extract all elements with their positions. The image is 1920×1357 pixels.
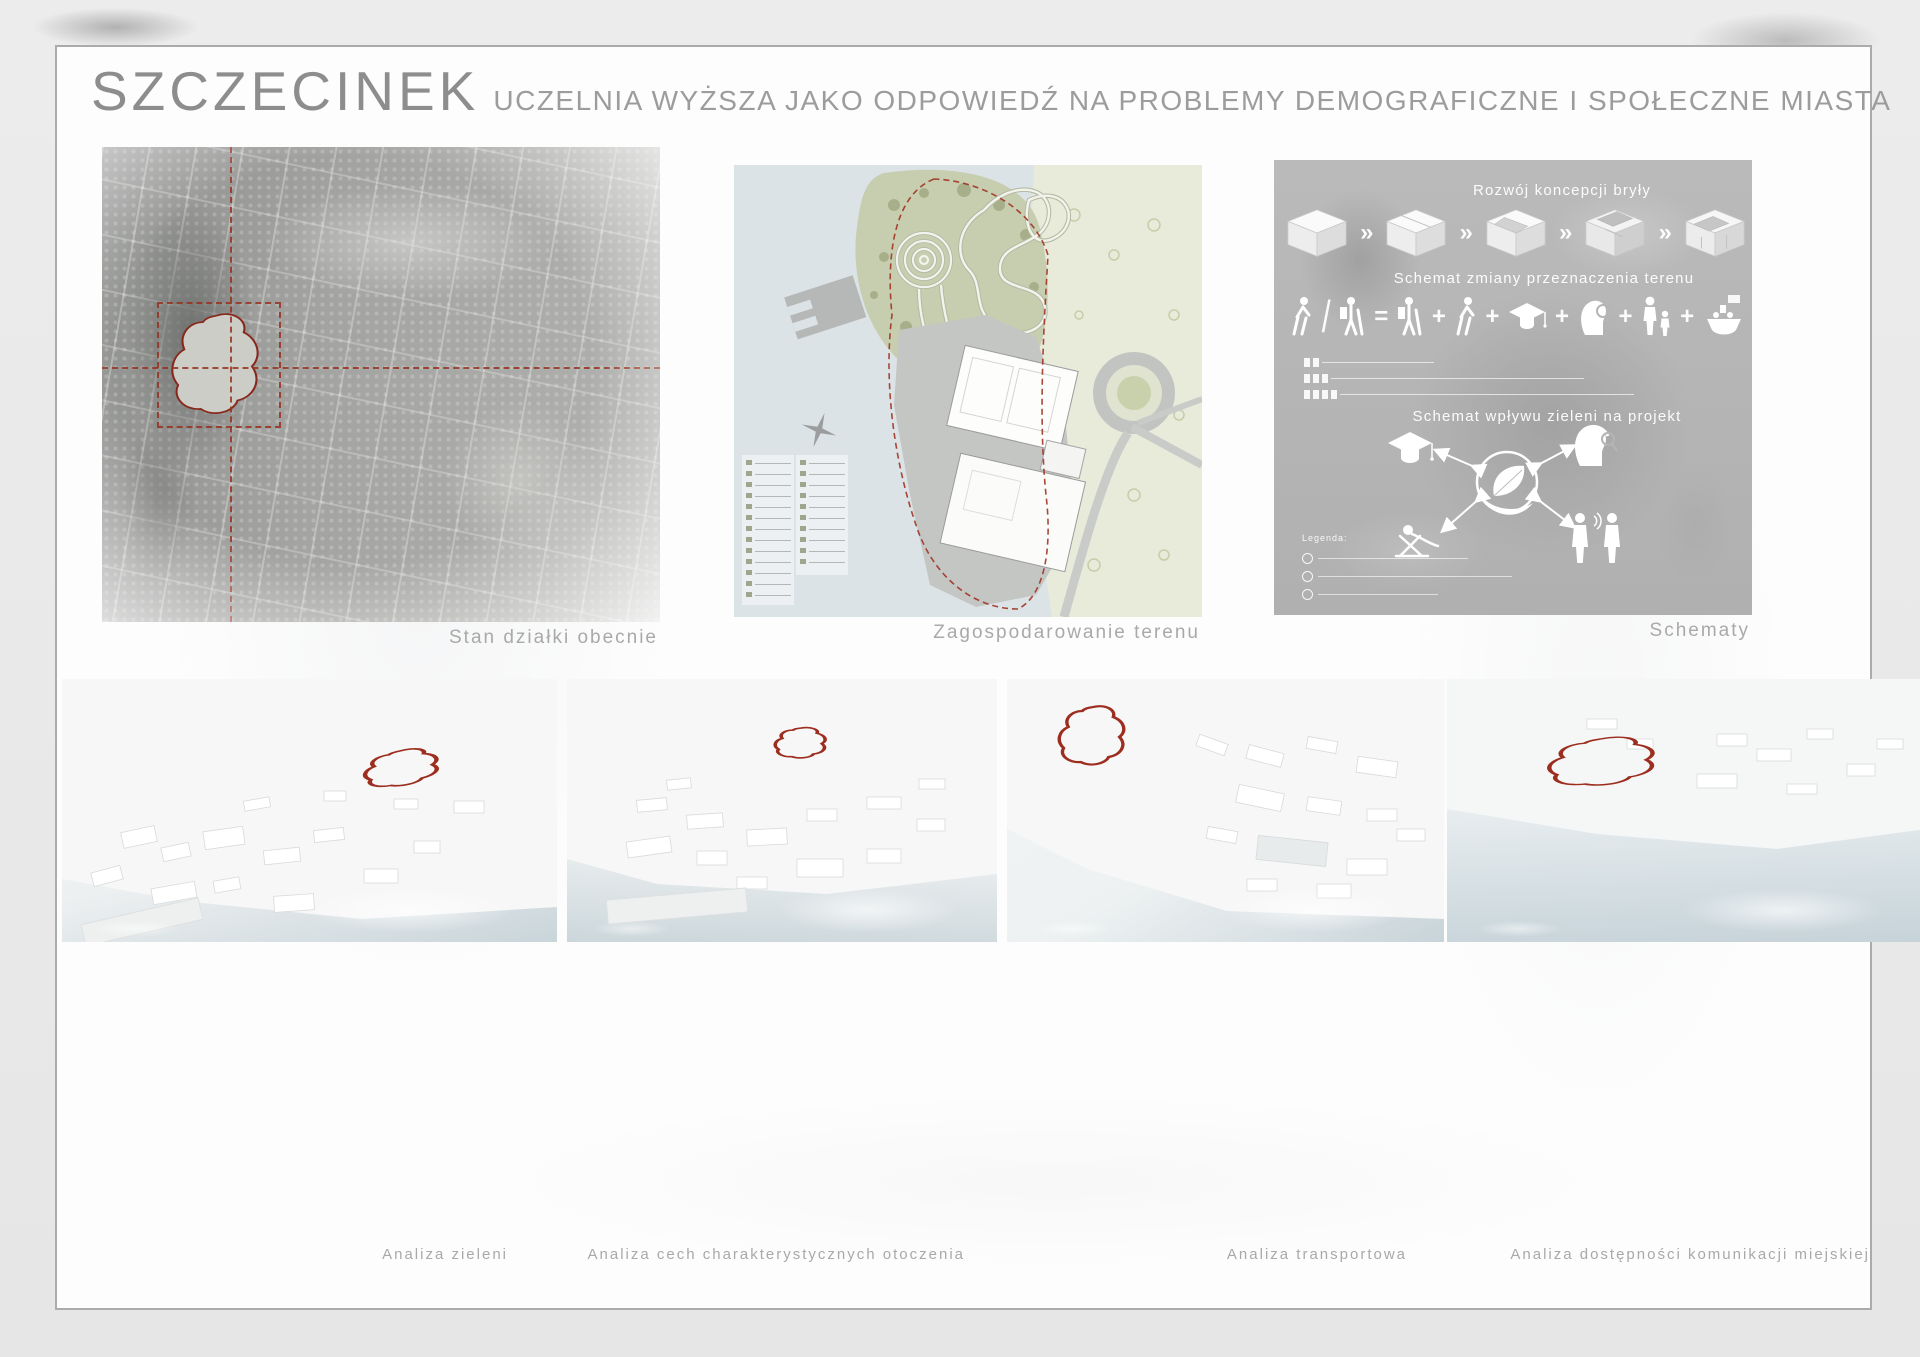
title-bar: SZCZECINEK UCZELNIA WYŻSZA JAKO ODPOWIED… xyxy=(91,59,1891,123)
visualization-2 xyxy=(567,679,997,942)
family-icon xyxy=(1640,296,1672,338)
plus-icon: + xyxy=(1485,303,1499,331)
compass-icon xyxy=(796,407,841,452)
scheme-landuse-title: Schemat zmiany przeznaczenia terenu xyxy=(1394,270,1694,287)
plus-icon: + xyxy=(1619,303,1633,331)
schemes-panel: Rozwój koncepcji bryły » » xyxy=(1274,160,1752,615)
visualization-4: Wizualizacje sąsiedztwa xyxy=(1447,679,1920,942)
poster-subtitle: UCZELNIA WYŻSZA JAKO ODPOWIEDŹ NA PROBLE… xyxy=(493,85,1891,117)
step-arrow-icon: » xyxy=(1559,221,1572,245)
plus-icon: + xyxy=(1432,303,1446,331)
legend-row xyxy=(1302,553,1512,564)
slash-icon: / xyxy=(1322,291,1331,343)
scheme-greenery-title: Schemat wpływu zieleni na projekt xyxy=(1413,408,1682,425)
site-axis-horizontal xyxy=(102,367,660,369)
poster-board: SZCZECINEK UCZELNIA WYŻSZA JAKO ODPOWIED… xyxy=(55,45,1872,1310)
analysis-character-panel: Analiza cech charakterystycznych otoczen… xyxy=(522,992,967,1242)
analysis-greenery-panel: Analiza zieleni xyxy=(62,992,510,1242)
concept-box-3 xyxy=(1485,207,1547,259)
schemes-legend: Legenda: xyxy=(1302,528,1512,600)
concept-box-5 xyxy=(1684,207,1746,259)
person-bullet-icon xyxy=(1302,589,1313,600)
step-arrow-icon: » xyxy=(1460,221,1473,245)
masterplan-drawing xyxy=(734,165,1202,617)
scheme-mass-title: Rozwój koncepcji bryły xyxy=(1473,182,1651,199)
visualization-row: Wizualizacje sąsiedztwa xyxy=(62,679,1920,942)
plus-icon: + xyxy=(1555,303,1569,331)
analysis-transport-panel: P P P P P P P P P P Analiza transportowa xyxy=(987,992,1409,1242)
landuse-note-row xyxy=(1304,390,1634,399)
concept-box-4 xyxy=(1584,207,1646,259)
site-outline xyxy=(172,314,257,413)
aerial-photo xyxy=(102,147,660,622)
ferry-icon xyxy=(1702,295,1746,339)
site-axis-vertical xyxy=(230,147,232,622)
analysis-publictransit-panel: A A A A A A A A A A A Legenda Analiza do… xyxy=(1432,992,1872,1242)
head-bullet-icon xyxy=(1302,571,1313,582)
runner-icon xyxy=(1290,296,1314,338)
landuse-note-row xyxy=(1304,374,1584,383)
landuse-note-row xyxy=(1304,358,1434,367)
aerial-photo-panel: Stan działki obecnie xyxy=(102,147,660,622)
step-arrow-icon: » xyxy=(1659,221,1672,245)
hiker-icon xyxy=(1338,296,1366,338)
legend-row xyxy=(1302,571,1512,582)
caption-aerial: Stan działki obecnie xyxy=(449,627,658,649)
round-plaza xyxy=(1093,352,1175,434)
caption-schemes: Schematy xyxy=(1650,620,1750,642)
masterplan-panel: Zagospodarowanie terenu xyxy=(734,165,1202,617)
leaf-bullet-icon xyxy=(1302,553,1313,564)
caption-transport: Analiza transportowa xyxy=(1227,1246,1407,1263)
caption-character: Analiza cech charakterystycznych otoczen… xyxy=(588,1246,965,1263)
plus-icon: + xyxy=(1680,303,1694,331)
landuse-equation: / = + + + xyxy=(1290,286,1746,348)
pier xyxy=(784,275,866,339)
concept-box-2 xyxy=(1385,207,1447,259)
poster-page: SZCZECINEK UCZELNIA WYŻSZA JAKO ODPOWIED… xyxy=(0,0,1920,1357)
equals-icon: = xyxy=(1374,303,1388,331)
graduation-cap-icon xyxy=(1507,301,1547,333)
concept-box-row: » » » xyxy=(1286,200,1746,266)
head-headphones-icon xyxy=(1575,426,1617,466)
caption-masterplan: Zagospodarowanie terenu xyxy=(933,622,1200,644)
caption-greenery: Analiza zieleni xyxy=(382,1246,508,1263)
caption-publictransit: Analiza dostępności komunikacji miejskie… xyxy=(1510,1246,1870,1263)
masterplan-legend-col1 xyxy=(742,455,794,605)
concept-box-1 xyxy=(1286,207,1348,259)
schemes-board: Rozwój koncepcji bryły » » xyxy=(1274,160,1752,615)
leaf-icon xyxy=(1477,452,1537,515)
poster-title: SZCZECINEK xyxy=(91,59,479,123)
step-arrow-icon: » xyxy=(1360,221,1373,245)
hiker-icon xyxy=(1396,296,1424,338)
schemes-legend-label: Legenda: xyxy=(1302,533,1348,543)
site-focus-rect xyxy=(157,302,281,428)
greenery-arrows xyxy=(1440,448,1570,528)
legend-row xyxy=(1302,589,1512,600)
runner-icon xyxy=(1454,296,1478,338)
aerial-overlay xyxy=(102,147,660,622)
head-search-icon xyxy=(1577,297,1611,337)
graduation-cap-icon xyxy=(1388,432,1434,463)
masterplan-legend-col2 xyxy=(796,455,848,575)
visualization-3 xyxy=(1007,679,1444,942)
visualization-1 xyxy=(62,679,557,942)
people-dialog-icon xyxy=(1572,513,1620,563)
